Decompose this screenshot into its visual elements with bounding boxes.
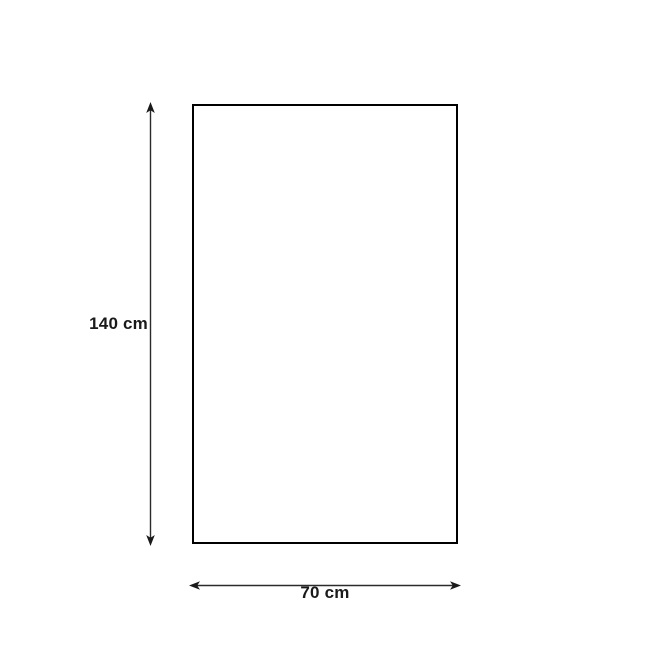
arrow-up-icon: [146, 102, 155, 113]
arrow-left-icon: [189, 581, 200, 590]
height-dimension-label: 140 cm: [89, 314, 148, 334]
diagram-canvas: 140 cm 70 cm: [0, 0, 650, 650]
arrow-right-icon: [450, 581, 461, 590]
width-dimension-label: 70 cm: [300, 583, 349, 603]
rectangle-shape: [192, 104, 458, 544]
arrow-down-icon: [146, 535, 155, 546]
